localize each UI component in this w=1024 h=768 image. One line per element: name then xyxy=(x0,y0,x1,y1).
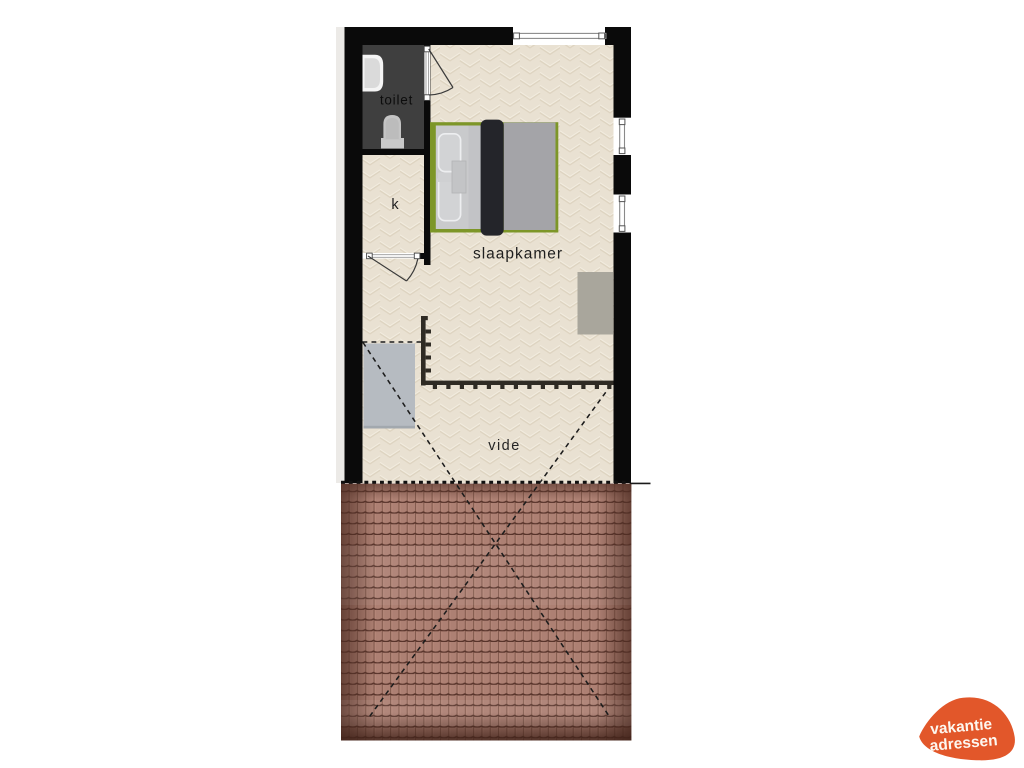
svg-text:k: k xyxy=(391,197,399,213)
svg-text:toilet: toilet xyxy=(380,93,413,108)
svg-text:slaapkamer: slaapkamer xyxy=(473,246,563,263)
svg-text:vide: vide xyxy=(488,438,521,454)
